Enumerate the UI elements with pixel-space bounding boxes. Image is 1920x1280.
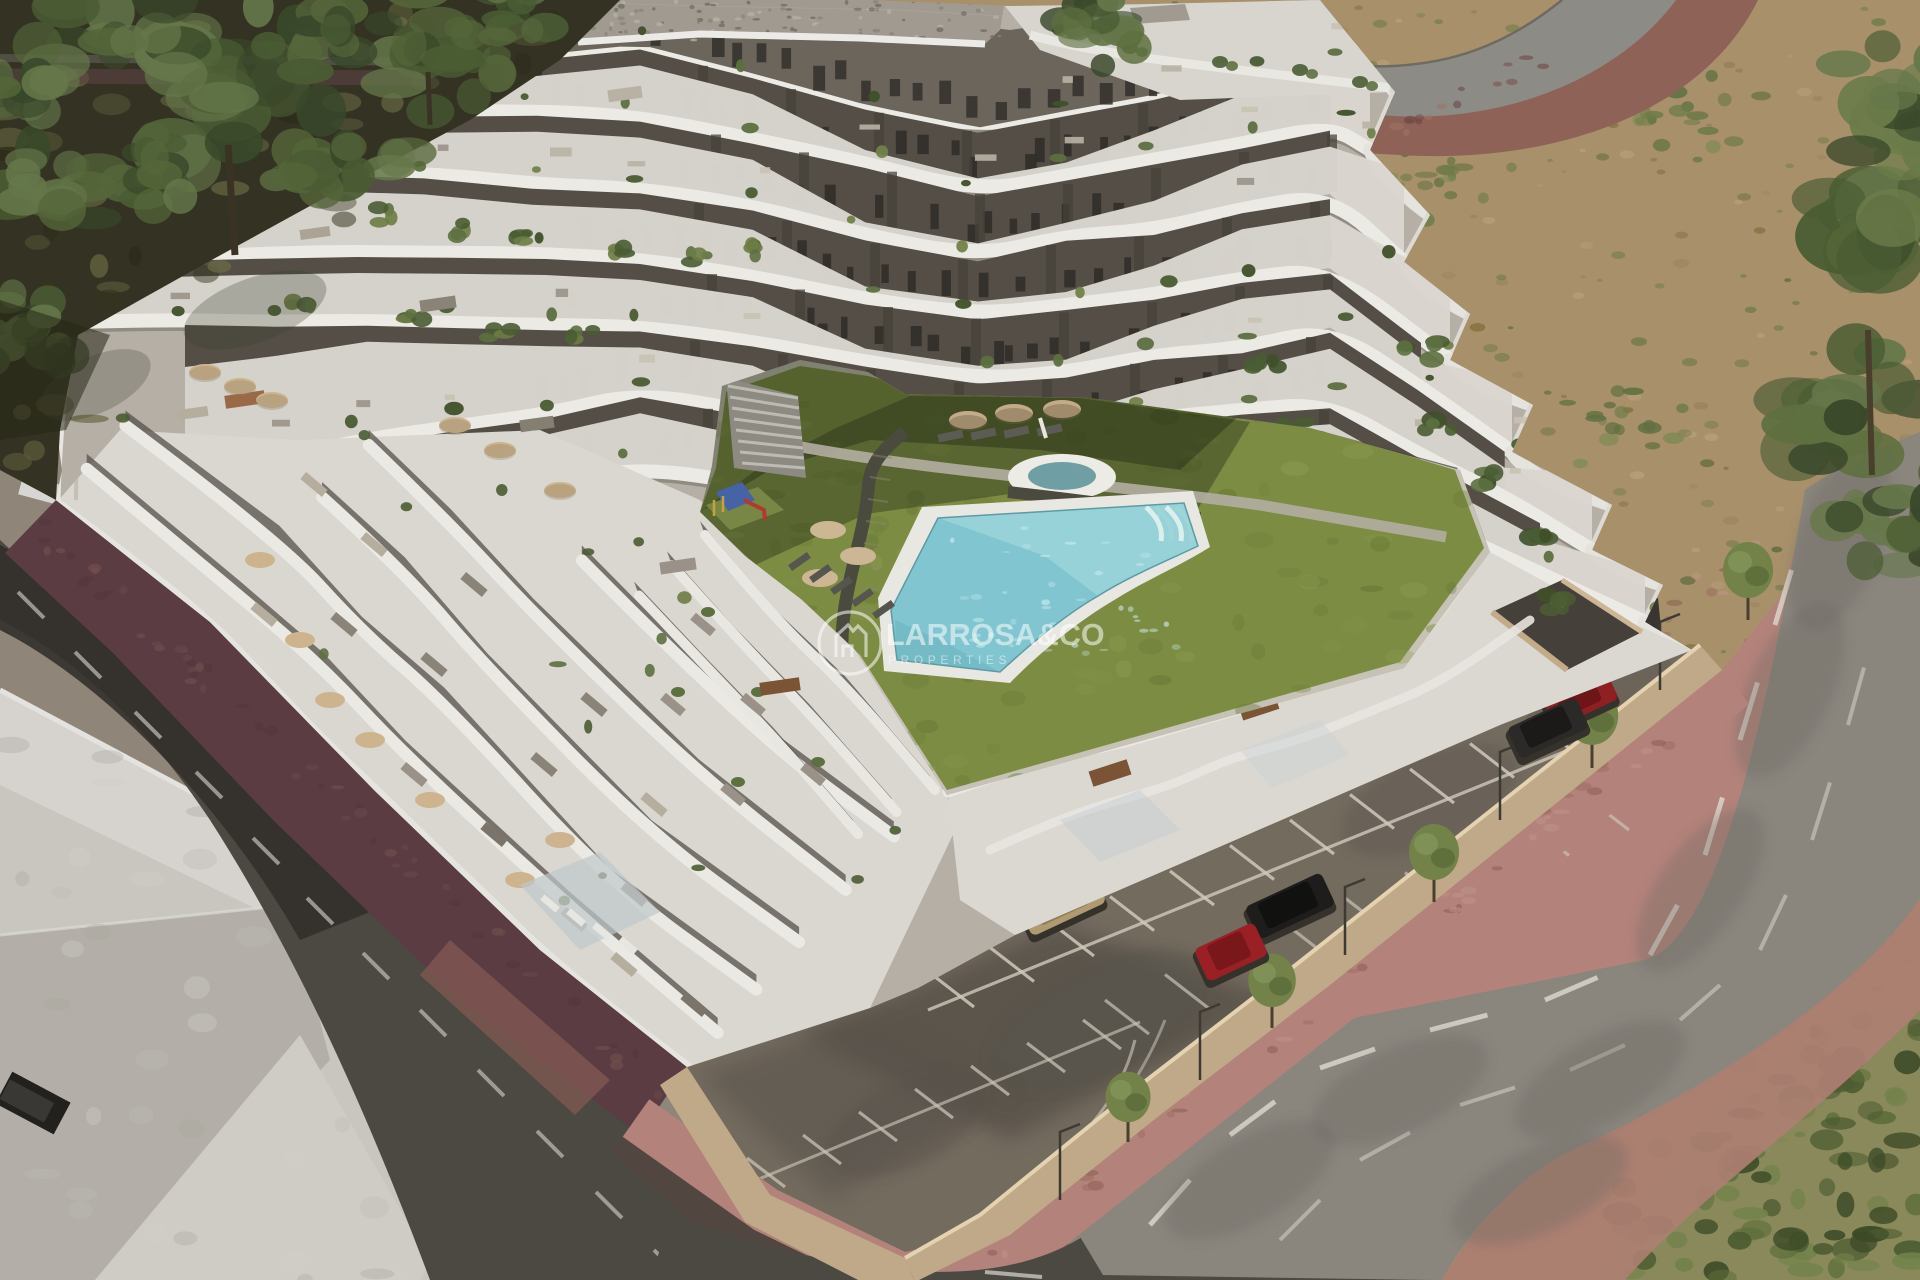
svg-text:LARROSA&CO: LARROSA&CO <box>886 618 1105 652</box>
svg-text:PROPERTIES: PROPERTIES <box>888 653 1011 667</box>
